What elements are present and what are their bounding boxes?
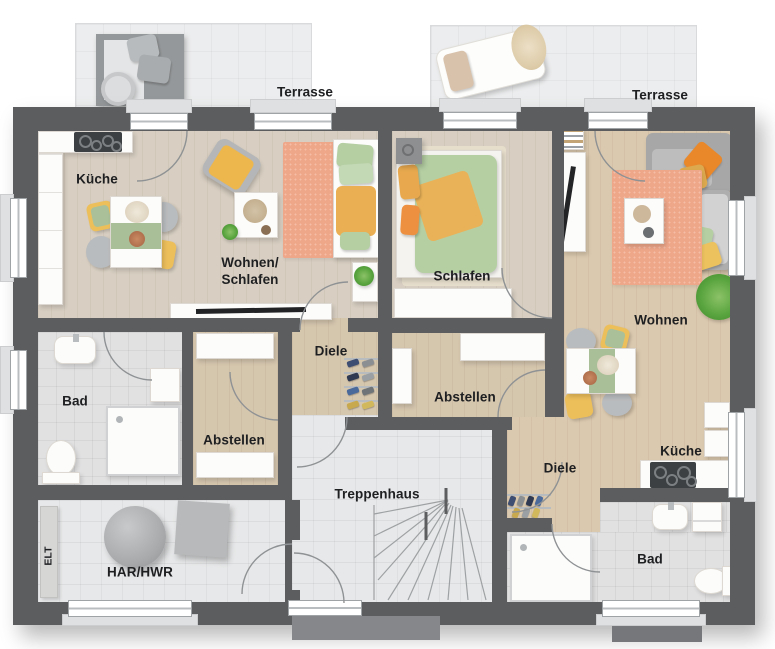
wardrobe	[394, 288, 512, 318]
kitchen-cabinet	[38, 153, 63, 305]
kitchen-cabinet	[704, 402, 730, 428]
cup	[643, 227, 654, 238]
water-tank	[104, 506, 166, 568]
room-label-bath-right: Bad	[637, 552, 663, 569]
shower	[106, 406, 180, 476]
stairwell-floor	[292, 415, 492, 602]
faucet	[668, 502, 674, 510]
drain	[116, 416, 123, 423]
wall-outer-right	[730, 107, 755, 625]
dining-table	[566, 348, 636, 394]
entry-door	[288, 600, 362, 616]
wall	[285, 500, 300, 540]
dining-table	[110, 196, 162, 268]
wall	[492, 417, 507, 458]
shoe-rack	[344, 358, 380, 412]
shoe-rack	[507, 494, 551, 520]
wall	[492, 505, 507, 602]
sink	[54, 336, 96, 364]
cooktop	[74, 132, 122, 152]
room-label-kitchen-left: Küche	[76, 172, 118, 189]
room-label-utility: HAR/HWR	[107, 565, 173, 582]
side-table	[234, 192, 278, 238]
shelf	[196, 333, 274, 359]
bowl	[129, 231, 145, 247]
window	[602, 600, 700, 617]
window	[443, 112, 517, 129]
tray	[243, 199, 267, 223]
wall	[38, 485, 292, 500]
flowers	[597, 355, 619, 375]
shelf	[460, 333, 545, 361]
wall	[507, 518, 552, 532]
heating-unit	[174, 500, 230, 557]
wall	[348, 318, 392, 332]
wall	[552, 312, 564, 333]
wall	[552, 131, 564, 268]
wall	[345, 417, 512, 430]
room-label-kitchen-right: Küche	[660, 444, 702, 461]
window	[728, 412, 745, 498]
plant	[354, 266, 374, 286]
entry-step	[292, 616, 440, 640]
bowl	[583, 371, 597, 385]
terrace-door	[588, 112, 648, 129]
terrace-door	[130, 113, 188, 130]
window	[10, 198, 27, 278]
window-sill	[744, 408, 757, 502]
cup	[261, 225, 271, 235]
daybed	[333, 139, 379, 258]
room-label-storage-right: Abstellen	[434, 390, 496, 407]
kitchen-cabinet	[704, 430, 730, 457]
bed	[396, 150, 502, 278]
dining-chair	[564, 390, 594, 420]
speaker-ring	[402, 144, 414, 156]
toilet-tank	[42, 472, 80, 484]
toilet	[46, 440, 76, 476]
room-label-living-sleeping: Wohnen/ Schlafen	[221, 255, 278, 289]
pillow	[338, 163, 373, 185]
room-label-terrace-right: Terrasse	[632, 88, 688, 105]
window-sill	[744, 196, 757, 280]
pillow	[340, 232, 370, 250]
room-label-stairwell: Treppenhaus	[334, 487, 419, 504]
window	[728, 200, 745, 276]
wall	[378, 131, 392, 430]
room-label-sleeping: Schlafen	[433, 269, 490, 286]
cabinet	[392, 348, 412, 404]
wall	[182, 332, 193, 485]
room-label-bath-left: Bad	[62, 394, 88, 411]
tray	[633, 205, 651, 223]
wall	[392, 318, 564, 333]
room-label-hall-right: Diele	[544, 461, 577, 478]
coffee-table	[624, 198, 664, 244]
wall	[545, 333, 558, 370]
room-label-terrace-left: Terrasse	[277, 85, 333, 102]
window	[10, 350, 27, 410]
wall	[600, 488, 730, 502]
wall	[38, 318, 300, 332]
shelf	[196, 452, 274, 478]
wall	[278, 332, 292, 485]
room-label-electrical: ELT	[42, 546, 55, 565]
plant	[222, 224, 238, 240]
pillow	[136, 54, 171, 84]
window-sill	[126, 99, 192, 113]
window	[68, 600, 192, 617]
pillow	[397, 164, 420, 200]
pillow	[400, 204, 420, 235]
blanket	[336, 186, 376, 236]
cooktop	[650, 462, 696, 488]
room-label-hall-left: Diele	[315, 344, 348, 361]
window-sill	[439, 98, 521, 112]
window	[254, 113, 332, 130]
drain	[520, 544, 527, 551]
speaker	[396, 138, 422, 164]
seat-pad	[90, 204, 112, 227]
shower	[510, 534, 592, 602]
bath-cabinet	[150, 368, 180, 402]
faucet	[73, 334, 79, 342]
floor-plan: Terrasse Terrasse Küche Wohnen/ Schlafen…	[0, 0, 775, 649]
flowers	[125, 201, 149, 223]
washing-machine	[692, 502, 722, 532]
room-label-storage-left: Abstellen	[203, 433, 265, 450]
sink	[652, 504, 688, 530]
room-label-living: Wohnen	[634, 313, 688, 330]
